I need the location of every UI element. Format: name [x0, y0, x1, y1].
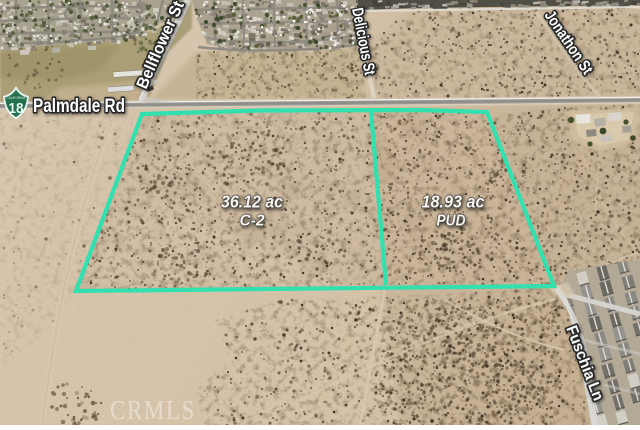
svg-text:18.93 ac: 18.93 ac: [422, 192, 485, 212]
svg-text:Palmdale Rd: Palmdale Rd: [33, 95, 125, 117]
svg-text:CRMLS: CRMLS: [110, 395, 196, 425]
svg-text:PUD: PUD: [437, 213, 466, 230]
svg-text:C-2: C-2: [240, 213, 265, 230]
svg-text:CALIFORNIA: CALIFORNIA: [7, 96, 27, 100]
svg-text:36.12 ac: 36.12 ac: [221, 192, 283, 212]
svg-text:18: 18: [9, 101, 24, 117]
